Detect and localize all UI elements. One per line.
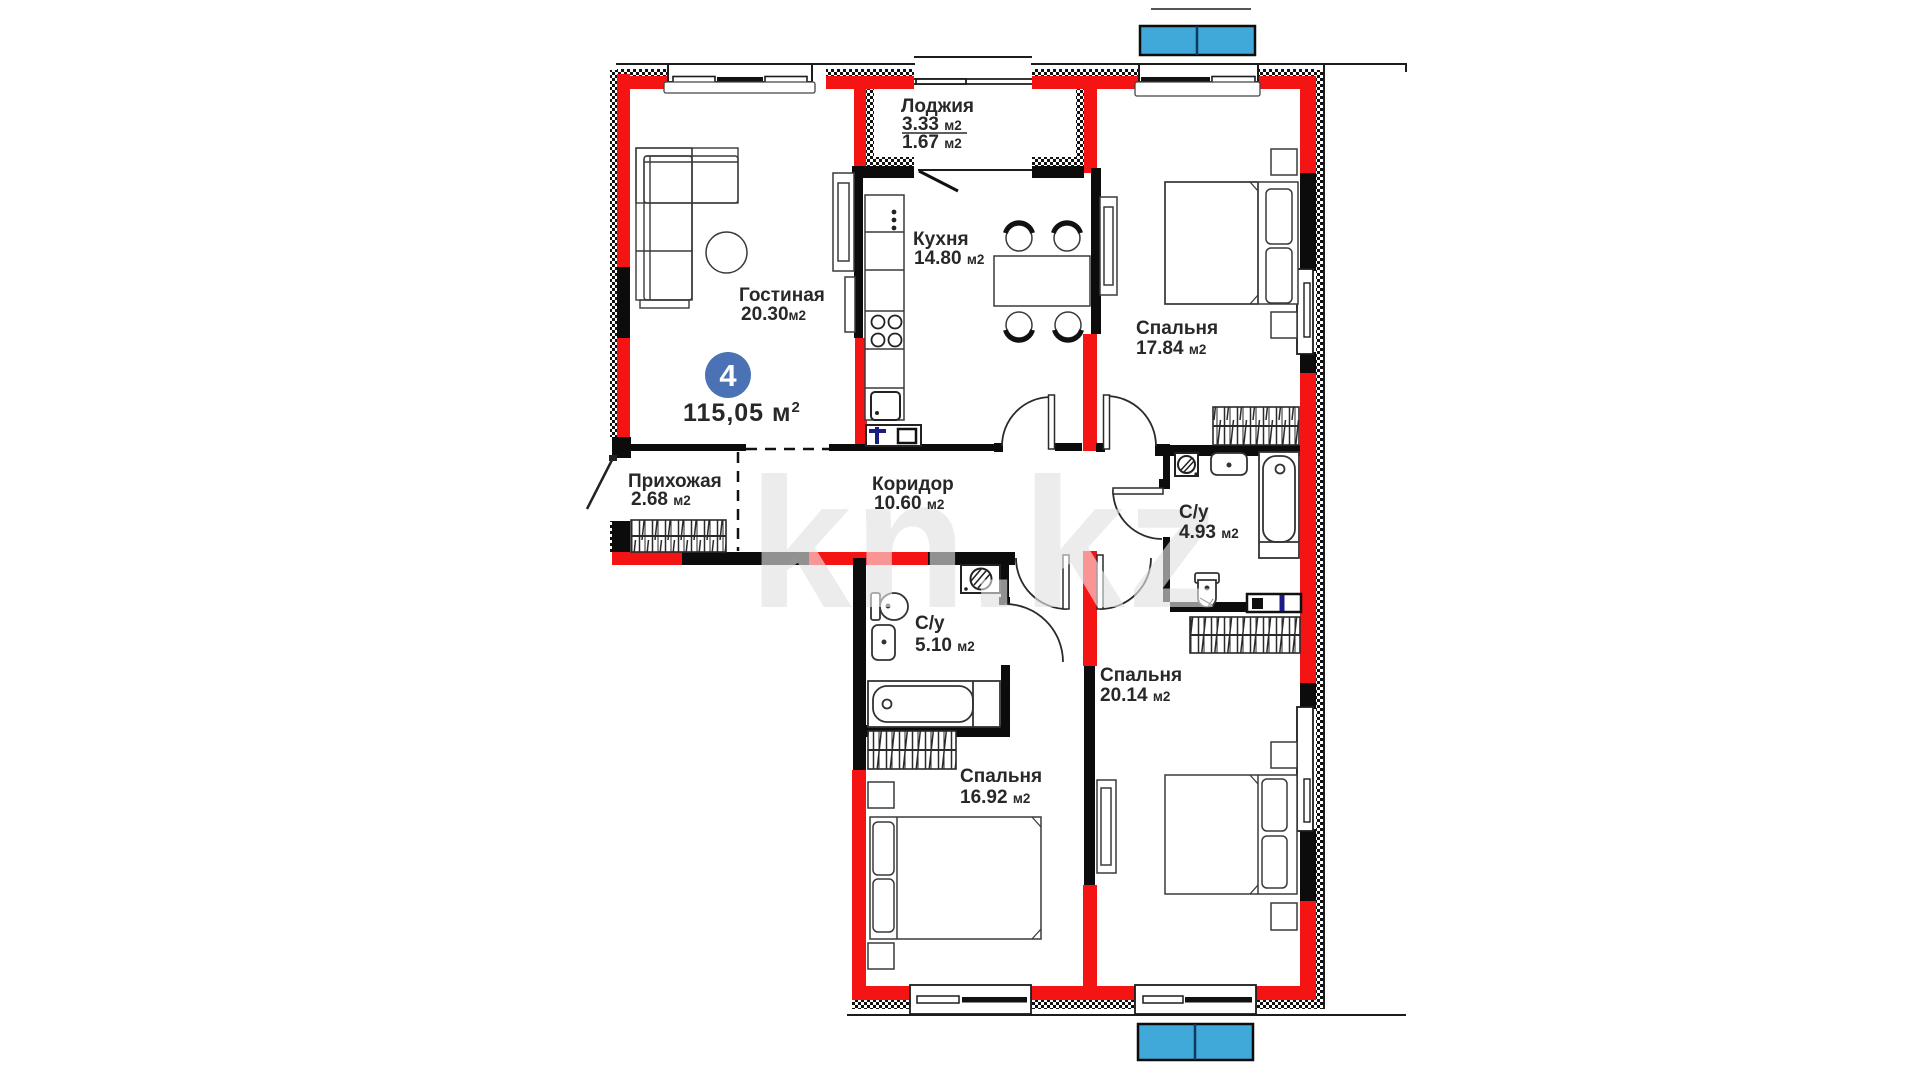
svg-text:Спальня: Спальня	[1100, 665, 1182, 686]
svg-text:14.80 м2: 14.80 м2	[914, 248, 984, 269]
svg-text:20.30м2: 20.30м2	[741, 304, 806, 325]
svg-text:10.60 м2: 10.60 м2	[874, 493, 944, 514]
svg-text:Кухня: Кухня	[913, 229, 969, 250]
svg-text:С/у: С/у	[915, 613, 945, 634]
svg-text:2.68 м2: 2.68 м2	[631, 489, 691, 510]
svg-text:1.67 м2: 1.67 м2	[902, 132, 962, 153]
svg-text:Коридор: Коридор	[872, 474, 954, 495]
svg-text:С/у: С/у	[1179, 502, 1209, 523]
svg-text:kn.kz: kn.kz	[749, 441, 1222, 647]
svg-text:4: 4	[719, 358, 737, 393]
svg-text:Спальня: Спальня	[960, 766, 1042, 787]
svg-text:Спальня: Спальня	[1136, 318, 1218, 339]
svg-text:16.92 м2: 16.92 м2	[960, 787, 1030, 808]
svg-text:115,05 м2: 115,05 м2	[683, 399, 801, 427]
svg-text:4.93 м2: 4.93 м2	[1179, 522, 1239, 543]
svg-text:5.10 м2: 5.10 м2	[915, 635, 975, 656]
svg-text:Гостиная: Гостиная	[739, 285, 825, 306]
svg-text:17.84 м2: 17.84 м2	[1136, 338, 1206, 359]
svg-text:20.14 м2: 20.14 м2	[1100, 685, 1170, 706]
